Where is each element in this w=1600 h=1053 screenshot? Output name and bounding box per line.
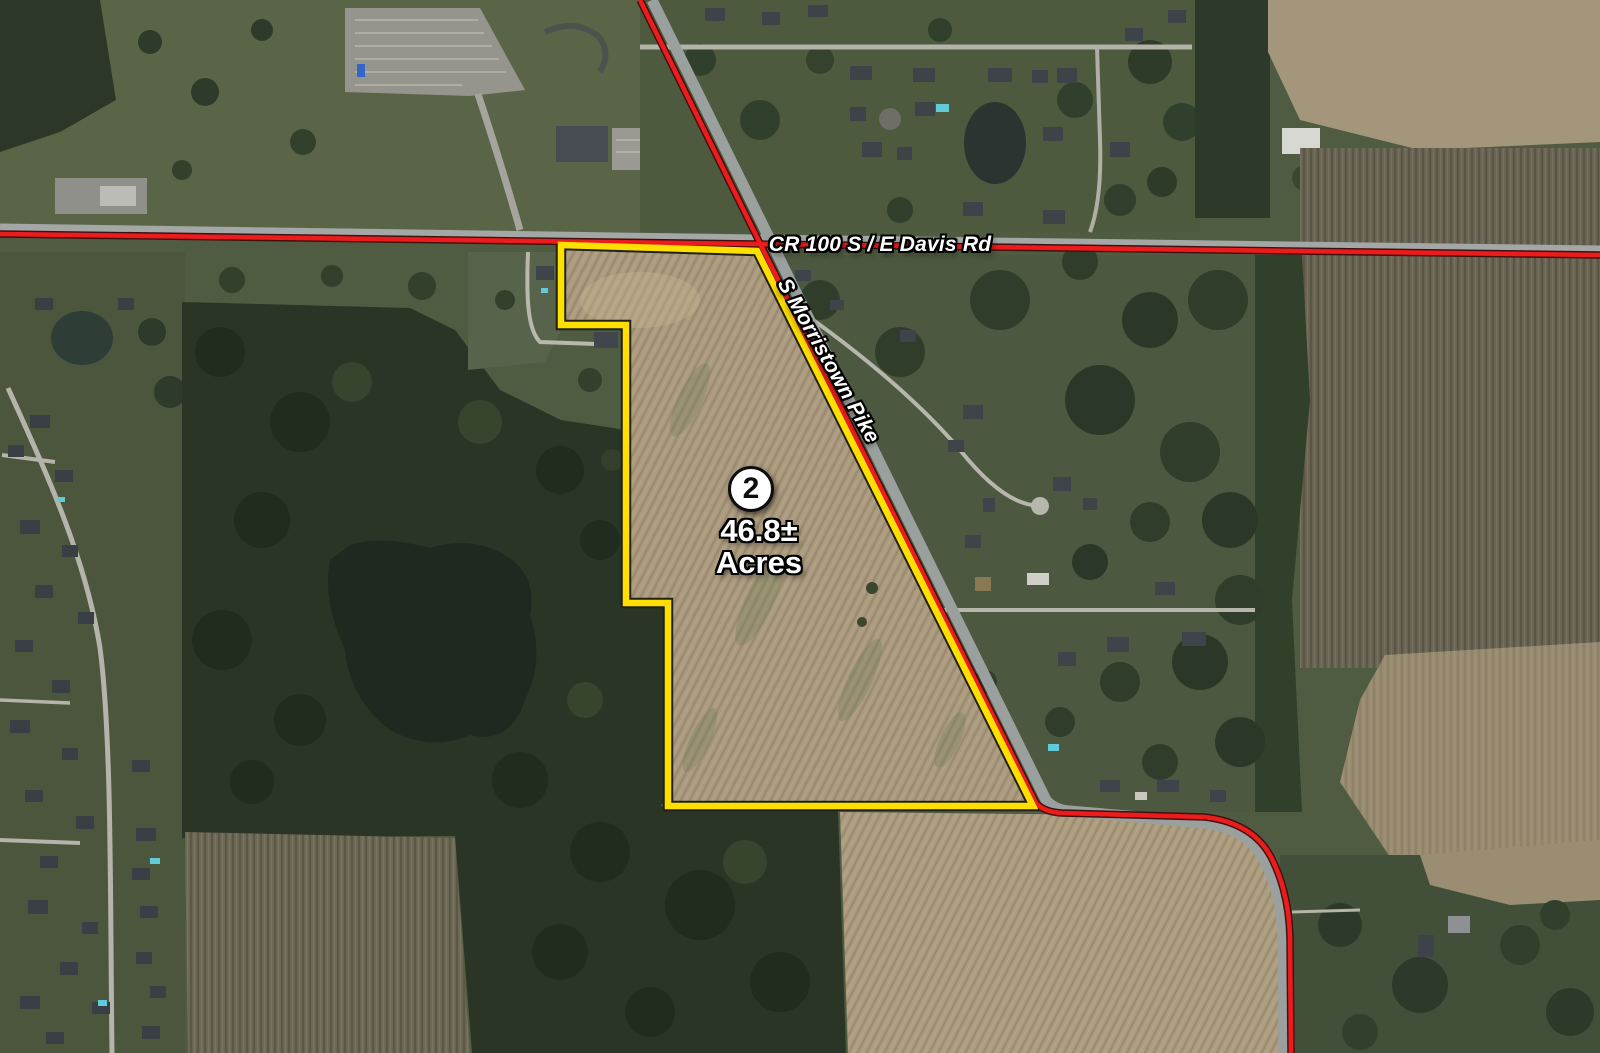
parcel-marker: 2 [728, 466, 774, 512]
acreage-unit: Acres [716, 547, 802, 579]
top-center-residential [640, 0, 1201, 232]
pond [964, 102, 1026, 184]
acreage-label: 46.8± Acres [716, 515, 802, 579]
left-subdivision [0, 252, 186, 1053]
bottom-right-field [840, 812, 1292, 1053]
bottom-left-field [185, 832, 470, 1053]
road-label-primary: CR 100 S / E Davis Rd [769, 233, 991, 257]
parcel-marker-number: 2 [743, 472, 760, 506]
church-building [556, 126, 608, 162]
aerial-map-flyer: CR 100 S / E Davis Rd S Morristown Pike … [0, 0, 1600, 1053]
pond [51, 311, 113, 365]
acreage-value: 46.8± [716, 515, 802, 547]
